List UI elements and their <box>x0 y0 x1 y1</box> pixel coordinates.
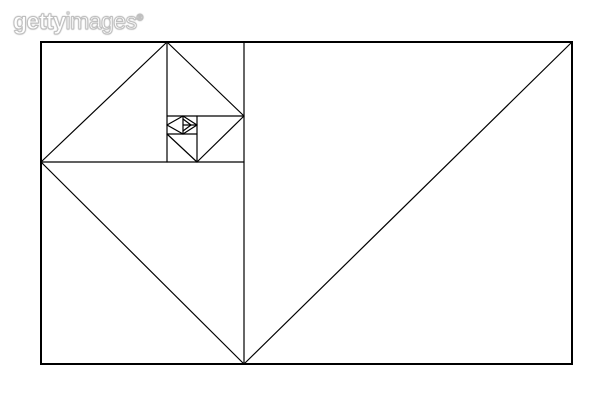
watermark-images-text: images <box>65 8 136 34</box>
gettyimages-watermark: gettyimages® <box>13 8 143 35</box>
canvas: gettyimages® <box>0 0 612 408</box>
watermark-getty-text: getty <box>13 8 65 34</box>
spiral-chord <box>197 116 244 162</box>
golden-ratio-diagram <box>0 0 612 408</box>
spiral-chord <box>41 42 167 162</box>
spiral-chord <box>167 42 244 116</box>
outer-golden-rectangle <box>41 42 572 364</box>
diamond-edge <box>167 125 183 134</box>
registered-trademark-icon: ® <box>137 12 144 22</box>
spiral-chord <box>244 42 572 364</box>
spiral-chord <box>167 134 197 162</box>
diamond-edge <box>167 116 183 125</box>
spiral-chord <box>41 162 244 364</box>
